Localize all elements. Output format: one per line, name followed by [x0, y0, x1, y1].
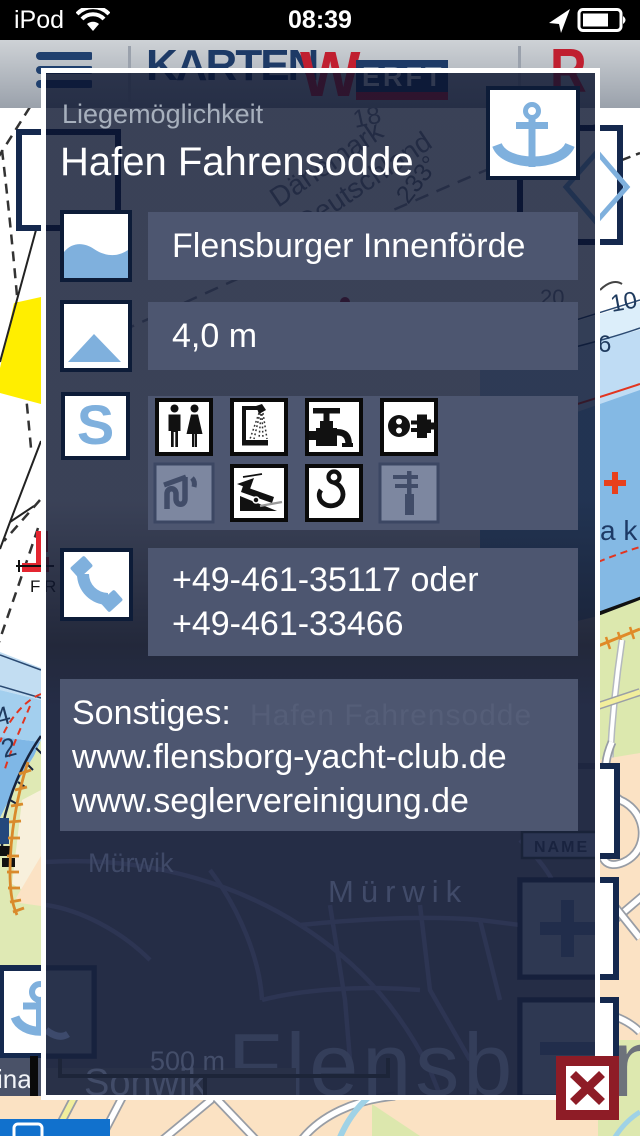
svg-text:NAME: NAME: [534, 839, 589, 856]
svg-text:500 m: 500 m: [150, 1046, 225, 1076]
svg-text:Flensb: Flensb: [228, 1015, 516, 1114]
svg-text:Mürwik: Mürwik: [88, 848, 174, 878]
svg-text:Mürwik: Mürwik: [328, 874, 468, 909]
